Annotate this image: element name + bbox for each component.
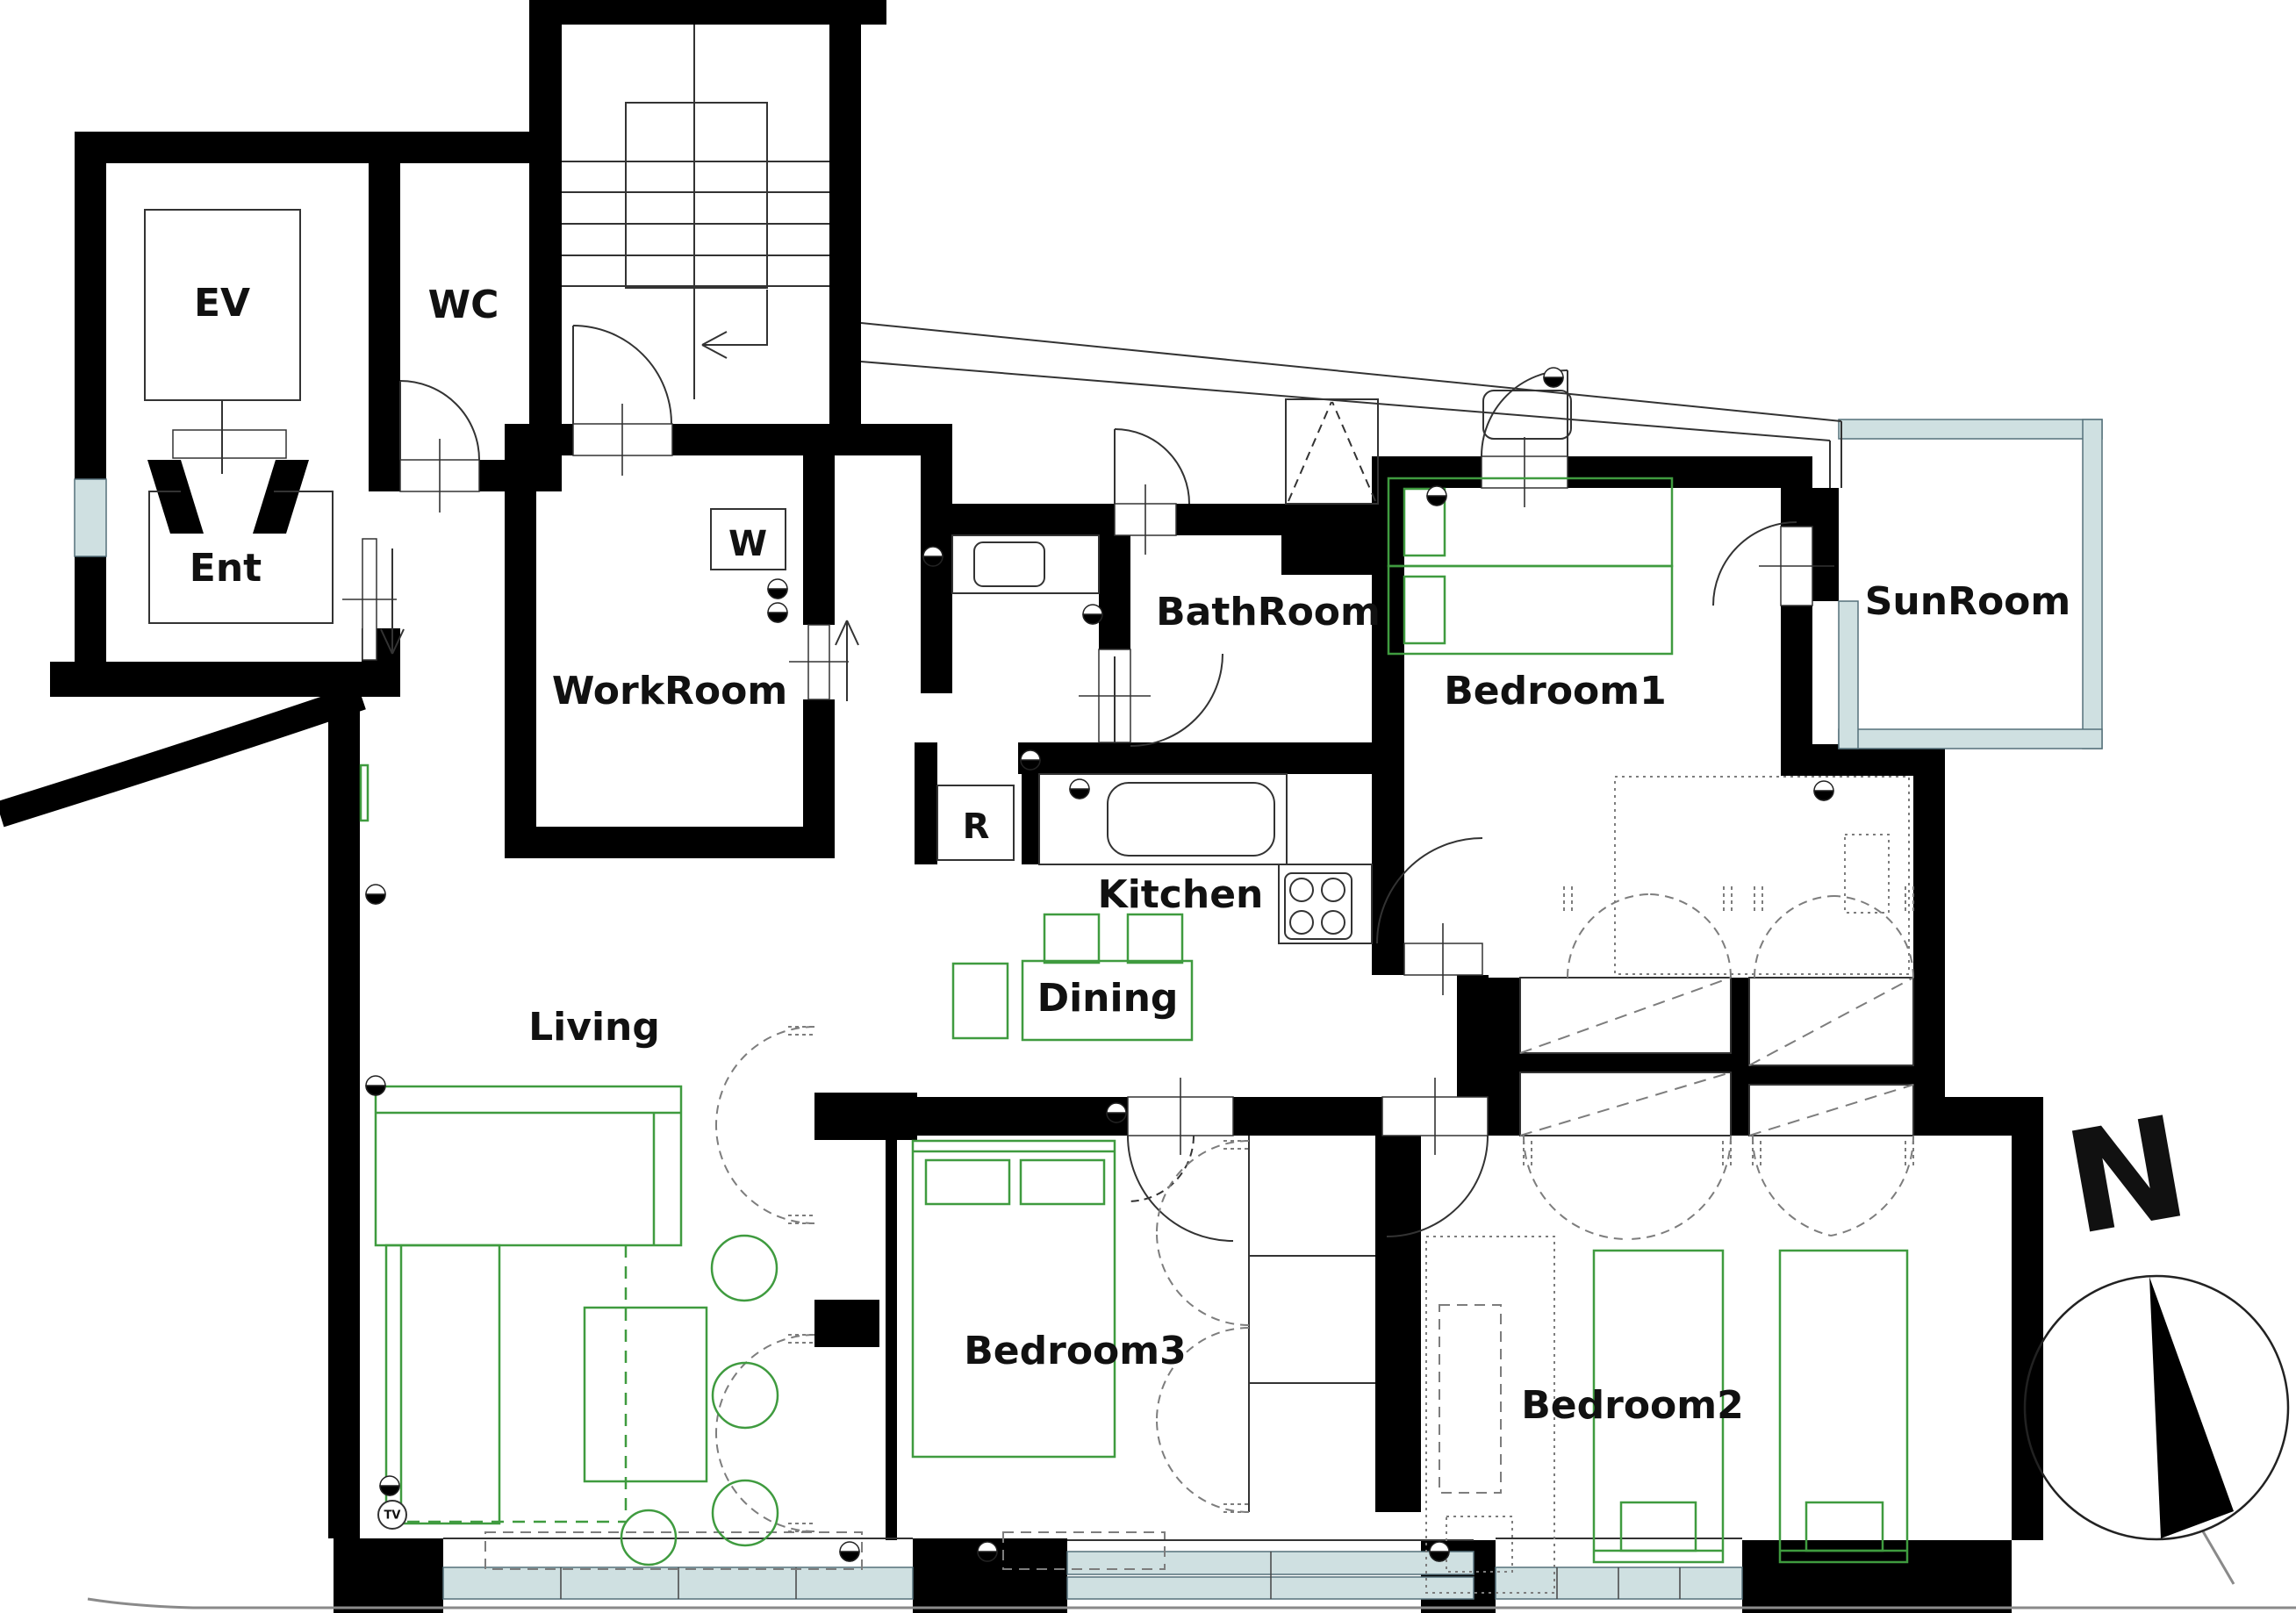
outlet-icon [366,885,385,904]
tv-label: TV [384,1509,401,1523]
room-label-ent: Ent [190,546,262,591]
staircase [562,25,829,399]
outlet-icon [840,1542,859,1561]
outlet-icon [768,579,787,599]
outlet-icon [923,547,943,566]
room-label-bathroom: BathRoom [1156,590,1381,634]
outlet-icon [1814,781,1833,800]
stair-direction-arrow [702,290,767,345]
outlet-icon [1070,779,1089,799]
hall-up-arrow [836,620,858,701]
living-stool [712,1236,777,1301]
sunroom-glass-top [1839,419,2102,439]
outlet-icon [768,603,787,622]
room-label-dining: Dining [1037,976,1179,1021]
stove-icon [1285,873,1352,939]
sunroom-glass-left [1839,601,1858,749]
room-label-ev: EV [194,281,250,326]
outlet-icon [1107,1103,1126,1122]
room-label-sunroom: SunRoom [1865,579,2071,624]
living-stool [713,1480,778,1545]
refrigerator-label: R [963,806,990,847]
room-label-bedroom2: Bedroom2 [1521,1383,1744,1428]
room-label-workroom: WorkRoom [552,669,787,713]
outlet-icon [366,1076,385,1095]
outlet-icon [1427,486,1446,505]
meter-box [1286,399,1378,504]
wall-marker [361,765,368,821]
tv-icon: TV [378,1501,406,1529]
corridor-bench [1483,391,1571,439]
outlet-icon [1544,368,1563,387]
entry-down-arrow [381,548,404,654]
sunroom-glass-right [2083,419,2102,749]
outlet-icon [1021,750,1040,770]
kitchen-sink [1108,783,1274,856]
stair-landing [626,103,767,288]
outlet-icon [1430,1542,1449,1561]
room-label-bedroom1: Bedroom1 [1444,669,1667,713]
washroom-door [1115,429,1189,504]
floor-plan: TV E [0,0,2296,1613]
room-label-living: Living [528,1005,660,1050]
room-label-kitchen: Kitchen [1098,872,1264,917]
compass: N [2025,1085,2288,1539]
room-label-bedroom3: Bedroom3 [964,1329,1187,1373]
outlet-icon [380,1476,399,1495]
compass-north-label: N [2055,1085,2199,1266]
room-label-wc: WC [428,283,499,327]
sunroom-glass-bottom [1839,729,2102,749]
living-stool [713,1363,778,1428]
vanity-basin [974,542,1044,586]
ent-window [75,479,106,556]
compass-needle-icon [2149,1277,2234,1538]
outlet-icon [1083,605,1102,624]
room-labels: EV WC Ent WorkRoom BathRoom Bedroom1 Sun… [190,281,2070,1428]
bedroom1-beds [1388,478,1672,654]
outlet-icon [978,1542,997,1561]
washer-label: W [728,524,767,564]
living-sofa [376,1086,681,1523]
bedroom3-bed [913,1141,1115,1457]
living-table [585,1308,707,1481]
